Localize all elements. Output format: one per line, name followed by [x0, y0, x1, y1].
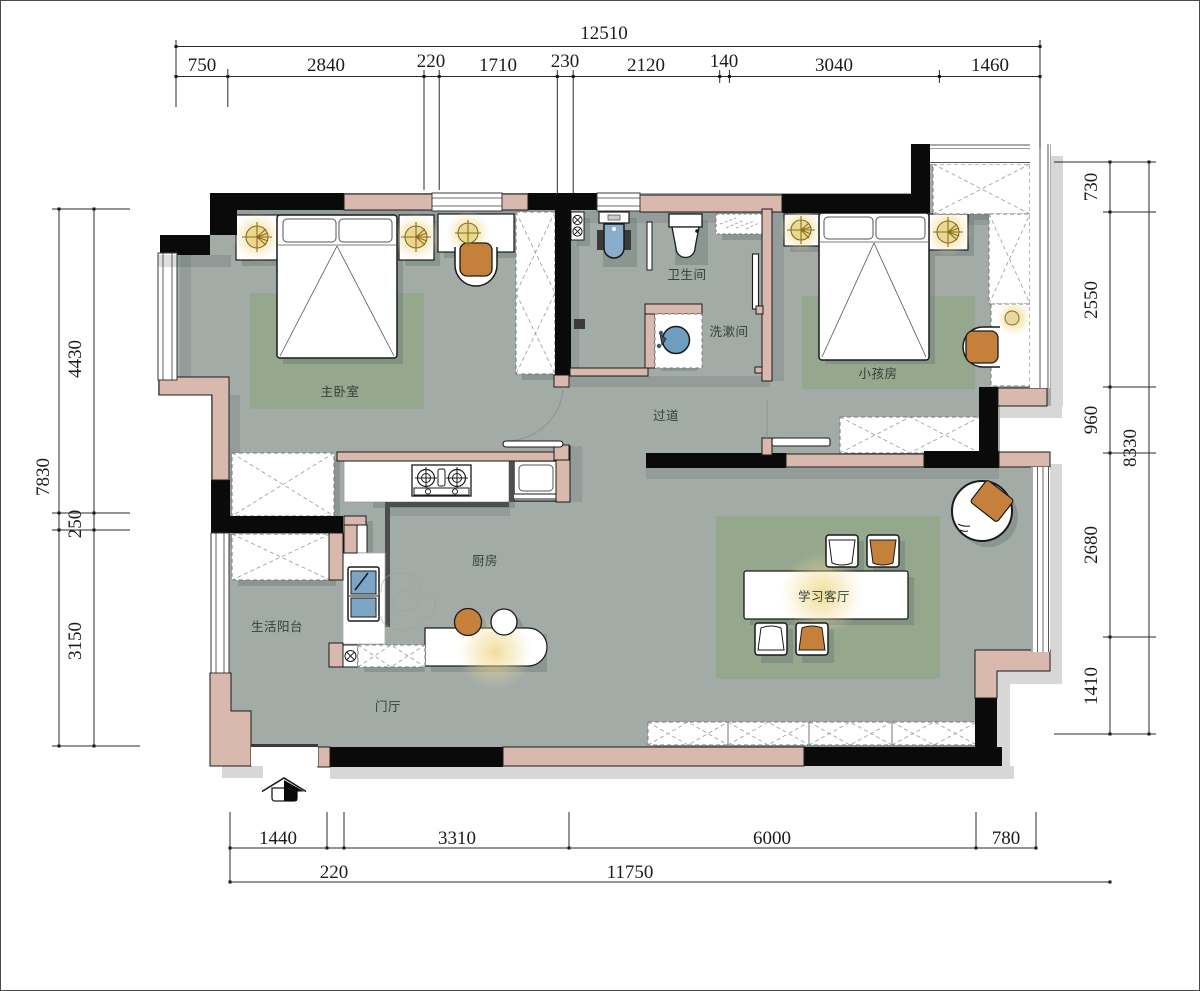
svg-text:厨房: 厨房	[472, 553, 498, 568]
svg-text:230: 230	[551, 51, 580, 72]
svg-text:过道: 过道	[653, 409, 679, 423]
svg-text:7830: 7830	[33, 458, 54, 496]
svg-text:洗漱间: 洗漱间	[709, 325, 748, 339]
svg-text:730: 730	[1081, 173, 1102, 202]
svg-text:门厅: 门厅	[375, 699, 401, 714]
svg-text:2120: 2120	[627, 55, 665, 76]
svg-text:2550: 2550	[1081, 281, 1102, 319]
svg-text:960: 960	[1081, 406, 1102, 435]
svg-text:6000: 6000	[753, 828, 791, 849]
svg-text:1440: 1440	[259, 828, 297, 849]
svg-text:140: 140	[710, 51, 739, 72]
svg-text:4430: 4430	[65, 340, 86, 378]
svg-text:11750: 11750	[607, 862, 654, 883]
svg-text:2840: 2840	[307, 55, 345, 76]
svg-text:1410: 1410	[1081, 667, 1102, 705]
svg-text:3040: 3040	[815, 55, 853, 76]
svg-text:主卧室: 主卧室	[320, 384, 359, 399]
svg-text:学习客厅: 学习客厅	[798, 589, 850, 604]
svg-text:750: 750	[188, 55, 217, 76]
svg-text:12510: 12510	[580, 23, 628, 44]
svg-text:2680: 2680	[1081, 526, 1102, 564]
svg-text:780: 780	[992, 828, 1021, 849]
svg-text:生活阳台: 生活阳台	[251, 619, 303, 634]
svg-text:卫生间: 卫生间	[667, 268, 706, 282]
svg-text:1710: 1710	[479, 55, 517, 76]
svg-text:3150: 3150	[65, 622, 86, 660]
svg-text:250: 250	[65, 510, 86, 539]
svg-text:小孩房: 小孩房	[858, 366, 897, 381]
svg-text:220: 220	[320, 862, 349, 883]
svg-text:1460: 1460	[971, 55, 1009, 76]
svg-text:8330: 8330	[1120, 429, 1141, 467]
svg-text:220: 220	[417, 51, 446, 72]
svg-text:3310: 3310	[438, 828, 476, 849]
